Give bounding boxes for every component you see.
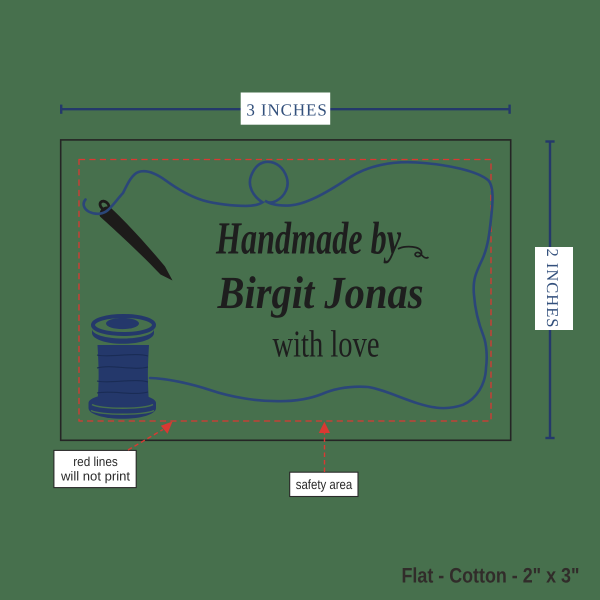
svg-text:Handmade by: Handmade by: [215, 213, 401, 264]
svg-text:with love: with love: [273, 324, 380, 366]
svg-text:2 INCHES: 2 INCHES: [543, 249, 562, 329]
svg-text:3 INCHES: 3 INCHES: [246, 100, 327, 119]
svg-text:Flat - Cotton - 2" x 3": Flat - Cotton - 2" x 3": [402, 565, 580, 588]
svg-text:Birgit Jonas: Birgit Jonas: [217, 267, 424, 318]
svg-text:safety area: safety area: [296, 477, 353, 492]
svg-text:red lines: red lines: [73, 454, 118, 469]
svg-text:will not print: will not print: [60, 469, 130, 484]
